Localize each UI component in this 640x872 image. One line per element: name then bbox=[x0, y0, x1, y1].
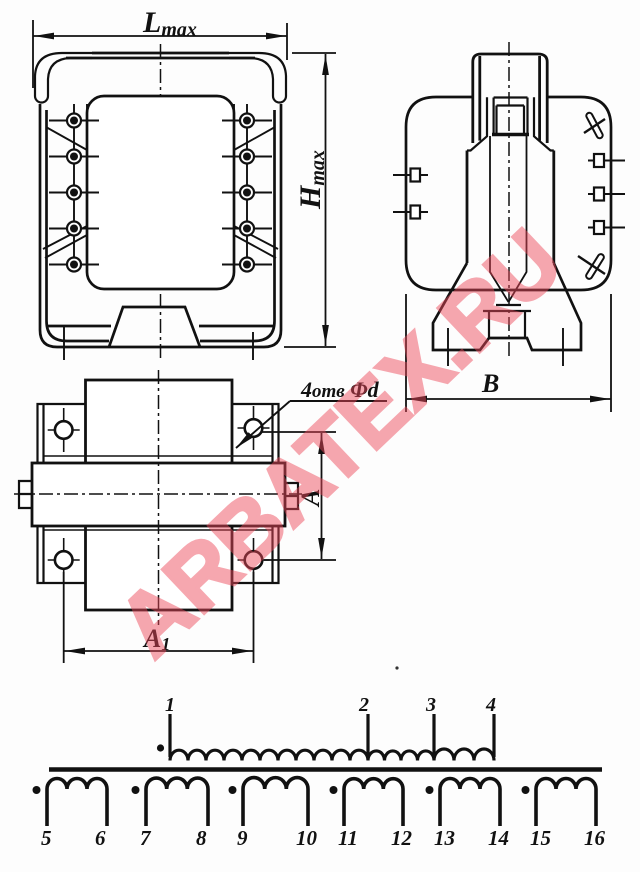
svg-text:12: 12 bbox=[391, 826, 413, 850]
svg-text:11: 11 bbox=[338, 826, 358, 850]
svg-text:Lmax: Lmax bbox=[142, 6, 197, 41]
svg-text:3: 3 bbox=[425, 694, 436, 716]
svg-text:5: 5 bbox=[41, 826, 52, 850]
svg-text:9: 9 bbox=[237, 826, 248, 850]
svg-text:2: 2 bbox=[358, 694, 369, 716]
svg-text:4: 4 bbox=[485, 694, 496, 716]
svg-text:7: 7 bbox=[140, 826, 152, 850]
svg-text:Hmax: Hmax bbox=[294, 150, 329, 210]
svg-text:8: 8 bbox=[196, 826, 207, 850]
svg-text:1: 1 bbox=[165, 694, 175, 716]
svg-text:10: 10 bbox=[296, 826, 318, 850]
svg-text:15: 15 bbox=[530, 826, 551, 850]
svg-text:6: 6 bbox=[95, 826, 106, 850]
svg-text:14: 14 bbox=[488, 826, 509, 850]
svg-text:16: 16 bbox=[584, 826, 606, 850]
svg-text:13: 13 bbox=[434, 826, 455, 850]
